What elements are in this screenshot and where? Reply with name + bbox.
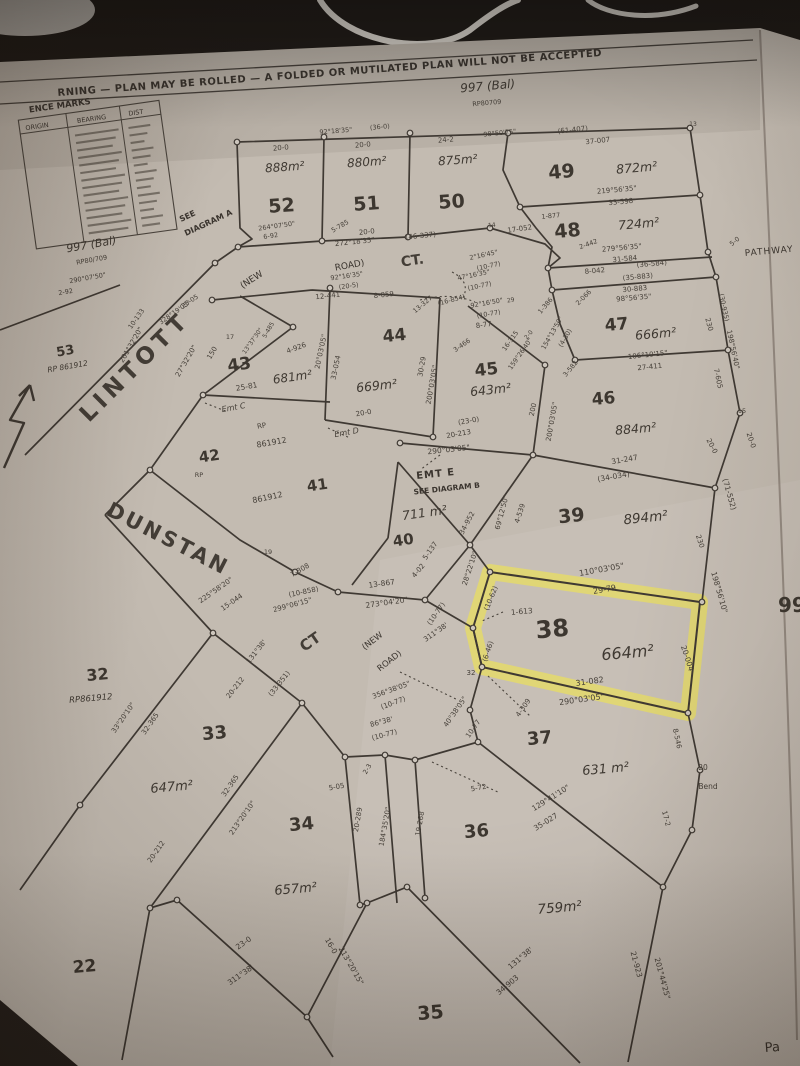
- measurement-label: 20-0: [273, 143, 290, 152]
- lot-43-number: 43: [226, 353, 252, 376]
- measurement-label: 20-0: [355, 140, 372, 149]
- survey-node: [209, 297, 215, 303]
- survey-node: [77, 802, 83, 808]
- measurement-label: 32: [467, 669, 476, 677]
- survey-node: [412, 757, 418, 763]
- photo-of-survey-plan: RNING — PLAN MAY BE ROLLED — A FOLDED OR…: [0, 0, 800, 1066]
- lot-53-number: 53: [55, 343, 75, 361]
- survey-node: [685, 710, 691, 716]
- lot-47-number: 47: [604, 314, 629, 336]
- measurement-label: 29: [506, 296, 515, 304]
- survey-node: [470, 625, 476, 631]
- lot-46-number: 46: [591, 388, 616, 410]
- lot-41-number: 41: [306, 475, 329, 496]
- survey-node: [487, 569, 493, 575]
- lot-50-area: 875m²: [438, 152, 478, 169]
- survey-node: [422, 895, 428, 901]
- lot-36-number: 36: [463, 820, 490, 843]
- measurement-label: RP: [195, 471, 204, 479]
- paper-shading-light: [330, 480, 800, 1066]
- lot-48-number: 48: [553, 219, 581, 243]
- survey-node: [212, 260, 218, 266]
- measurement-label: 15: [738, 407, 746, 415]
- survey-node: [542, 362, 548, 368]
- survey-node: [422, 597, 428, 603]
- survey-node: [712, 485, 718, 491]
- survey-node: [530, 452, 536, 458]
- survey-node: [364, 900, 370, 906]
- measurement-label: 1-877: [541, 211, 561, 221]
- survey-node: [335, 589, 341, 595]
- survey-node: [327, 285, 333, 291]
- bottom-right-text: Pa: [764, 1040, 780, 1056]
- measurement-label: 19: [264, 548, 272, 556]
- lot-51-number: 51: [353, 192, 381, 216]
- road-top-ct: CT.: [400, 252, 425, 271]
- survey-node: [430, 434, 436, 440]
- survey-node: [699, 599, 705, 605]
- lot-45-number: 45: [474, 359, 500, 381]
- survey-node: [545, 265, 551, 271]
- right-edge-text: 99: [778, 593, 800, 617]
- lot-40-number: 40: [392, 530, 415, 551]
- survey-node: [404, 884, 410, 890]
- survey-node: [200, 392, 206, 398]
- measurement-label: 14: [488, 222, 497, 230]
- measurement-label: 17: [226, 333, 234, 341]
- survey-node: [234, 139, 240, 145]
- lot-33-number: 33: [201, 722, 228, 745]
- measurement-label: 1-613: [511, 606, 534, 617]
- lot-52-area: 888m²: [265, 159, 305, 176]
- survey-node: [147, 467, 153, 473]
- survey-node: [304, 1014, 310, 1020]
- survey-node: [299, 700, 305, 706]
- lot-37-number: 37: [526, 727, 553, 750]
- survey-node: [467, 707, 473, 713]
- survey-node: [290, 324, 296, 330]
- survey-node: [342, 754, 348, 760]
- survey-node: [697, 192, 703, 198]
- lot-44-number: 44: [382, 325, 408, 347]
- survey-node: [235, 244, 241, 250]
- survey-node: [479, 664, 485, 670]
- survey-node: [713, 274, 719, 280]
- measurement-label: RP: [256, 421, 266, 430]
- lot-51-area: 880m²: [347, 154, 387, 171]
- lot-49-number: 49: [547, 160, 575, 184]
- survey-node: [407, 130, 413, 136]
- lot-34-number: 34: [288, 813, 315, 836]
- survey-node: [660, 884, 666, 890]
- survey-node: [397, 440, 403, 446]
- survey-node: [382, 752, 388, 758]
- survey-node: [467, 542, 473, 548]
- survey-node: [689, 827, 695, 833]
- survey-node: [549, 287, 555, 293]
- lot-22-number: 22: [72, 956, 97, 978]
- lot-52-number: 52: [268, 194, 296, 218]
- lot-35-number: 35: [416, 1001, 444, 1025]
- lot-38-number: 38: [534, 614, 570, 645]
- survey-node: [174, 897, 180, 903]
- measurement-label: 13: [689, 121, 697, 128]
- survey-node: [210, 630, 216, 636]
- measurement-label: 20: [698, 763, 708, 772]
- lot-42-number: 42: [198, 446, 221, 467]
- survey-node: [517, 204, 523, 210]
- survey-node: [147, 905, 153, 911]
- survey-node: [357, 902, 363, 908]
- survey-node: [319, 238, 325, 244]
- lot-50-number: 50: [438, 190, 466, 214]
- survey-node: [475, 739, 481, 745]
- lot-32-number: 32: [86, 664, 110, 685]
- lot-39-number: 39: [557, 504, 586, 529]
- measurement-label: Bend: [698, 782, 718, 791]
- measurement-label: 24-2: [438, 135, 455, 144]
- survey-node: [705, 249, 711, 255]
